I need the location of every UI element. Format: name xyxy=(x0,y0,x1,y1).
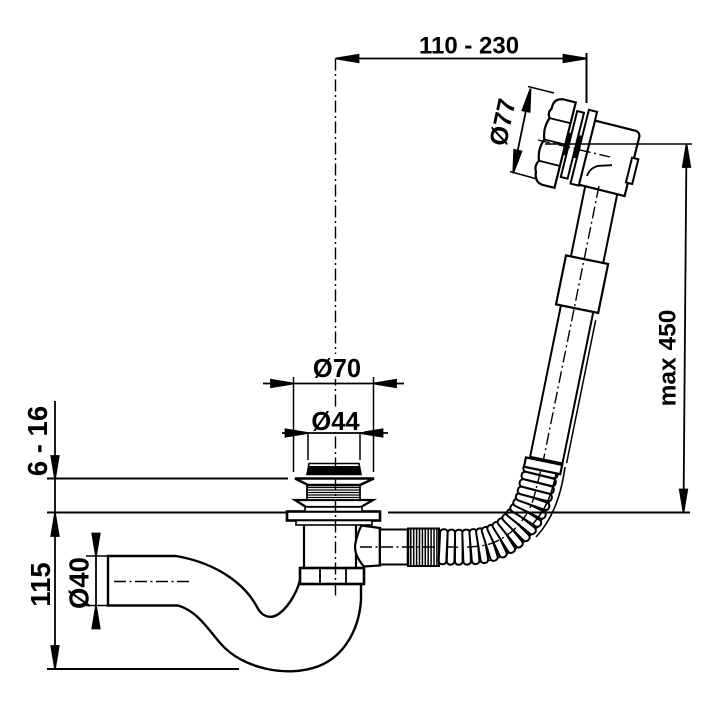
svg-text:Ø70: Ø70 xyxy=(313,355,361,383)
svg-text:max 450: max 450 xyxy=(655,310,682,407)
svg-text:Ø40: Ø40 xyxy=(64,557,95,609)
svg-text:Ø44: Ø44 xyxy=(311,408,360,436)
svg-text:6 - 16: 6 - 16 xyxy=(22,406,53,476)
svg-text:115: 115 xyxy=(25,562,56,606)
svg-text:110 - 230: 110 - 230 xyxy=(419,33,519,60)
